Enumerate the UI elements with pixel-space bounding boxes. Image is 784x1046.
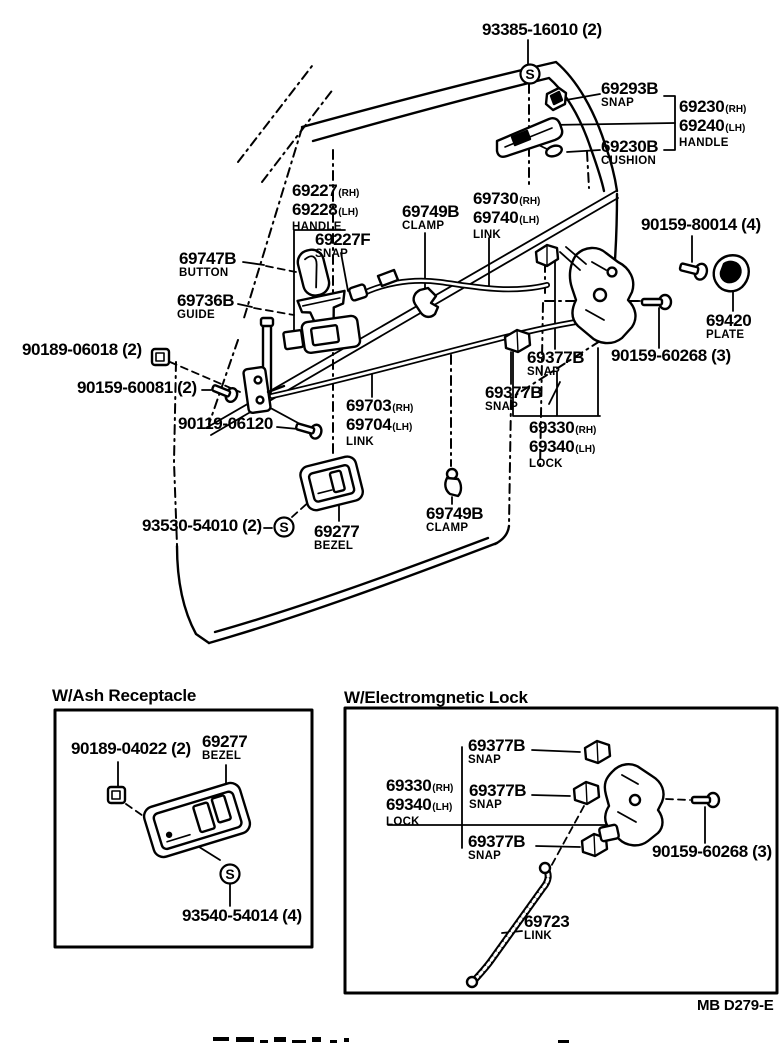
part-number: 69277	[314, 524, 359, 540]
part-number: 90119-06120	[178, 416, 273, 432]
callout-90119-06120: 90119-06120	[178, 416, 273, 432]
callout-69377b-inset-3: 69377B SNAP	[468, 834, 525, 862]
callout-69736b: 69736B GUIDE	[177, 293, 234, 321]
part-suffix: (RH)	[725, 104, 746, 115]
part-suffix: (RH)	[519, 196, 540, 207]
part-suffix: (RH)	[575, 425, 596, 436]
part-number: 93540-54014 (4)	[182, 908, 302, 924]
part-name: SNAP	[469, 800, 526, 811]
screw-90159-80014	[678, 259, 708, 281]
part-number: 69377B	[469, 783, 526, 799]
callout-69749b-top: 69749B CLAMP	[402, 204, 459, 232]
callout-69227-69228-handle: 69227(RH) 69228(LH) HANDLE	[292, 183, 359, 233]
bell-crank	[243, 367, 284, 414]
callout-69723: 69723 LINK	[524, 914, 569, 942]
part-number: 90189-04022 (2)	[71, 741, 191, 757]
part-number: 69730	[473, 189, 518, 208]
part-number: 69704	[346, 415, 391, 434]
part-name: SNAP	[468, 851, 525, 862]
inset-lock-title: W/Electromgnetic Lock	[344, 688, 528, 708]
part-number: 69227F	[315, 232, 370, 248]
part-number: 69377B	[527, 350, 584, 366]
part-number: 93530-54010 (2)	[142, 518, 262, 534]
callout-69377b-inset-1: 69377B SNAP	[468, 738, 525, 766]
screw-90159-60081	[210, 381, 239, 404]
callout-93530-54010: 93530-54010 (2)	[142, 518, 262, 534]
callout-69377b-inset-2: 69377B SNAP	[469, 783, 526, 811]
diagram-line-art: S S S	[0, 0, 784, 1046]
callout-69277-main: 69277 BEZEL	[314, 524, 359, 552]
part-name: CLAMP	[402, 221, 459, 232]
callout-93385-16010: 93385-16010 (2)	[482, 22, 602, 38]
screw-symbol-glyph: S	[525, 66, 534, 82]
callout-69749b-bottom: 69749B CLAMP	[426, 506, 483, 534]
part-name: SNAP	[315, 249, 370, 260]
callout-69293b: 69293B SNAP	[601, 81, 658, 109]
part-number: 69293B	[601, 81, 658, 97]
part-suffix: (LH)	[725, 123, 745, 134]
figure-code: MB D279-E	[697, 997, 774, 1014]
part-number: 69330	[386, 776, 431, 795]
parts-diagram-page: S S S 93385-16010 (2) 69293B SNAP 69230(…	[0, 0, 784, 1046]
part-suffix: (RH)	[338, 188, 359, 199]
callout-69330-69340-lock-inset: 69330(RH) 69340(LH) LOCK	[386, 778, 453, 828]
screw-90159-60268-main	[642, 295, 671, 309]
part-name: CUSHION	[601, 156, 658, 167]
part-number: 69230	[679, 97, 724, 116]
plate-69420	[714, 255, 749, 291]
part-name: SNAP	[485, 402, 542, 413]
part-suffix: (RH)	[432, 783, 453, 794]
part-name: LINK	[346, 437, 413, 448]
callout-69230-69240-handle: 69230(RH) 69240(LH) HANDLE	[679, 99, 746, 149]
bezel-69277-main	[299, 455, 365, 512]
part-number: 69723	[524, 914, 569, 930]
callout-69277-inset: 69277 BEZEL	[202, 734, 247, 762]
part-name: SNAP	[601, 98, 658, 109]
part-number: 69703	[346, 396, 391, 415]
part-number: 90159-60268 (3)	[652, 844, 772, 860]
part-number: 93385-16010 (2)	[482, 22, 602, 38]
part-name: LOCK	[529, 459, 596, 470]
part-name: HANDLE	[679, 138, 746, 149]
snap-69293b	[546, 88, 566, 110]
clamp-69749b-top	[414, 288, 438, 317]
callout-90159-60268-inset: 90159-60268 (3)	[652, 844, 772, 860]
part-suffix: (LH)	[392, 422, 412, 433]
part-number: 69340	[386, 795, 431, 814]
part-name: GUIDE	[177, 310, 234, 321]
part-number: 90159-60268 (3)	[611, 348, 731, 364]
callout-69330-69340-lock: 69330(RH) 69340(LH) LOCK	[529, 420, 596, 470]
cushion-69230b	[545, 144, 563, 158]
part-number: 90159-80014 (4)	[641, 217, 761, 233]
part-number: 69227	[292, 181, 337, 200]
callout-90159-60268: 90159-60268 (3)	[611, 348, 731, 364]
callout-90159-60081: 90159-60081 (2)	[77, 380, 197, 396]
callout-93540-54014: 93540-54014 (4)	[182, 908, 302, 924]
part-number: 69740	[473, 208, 518, 227]
callout-90189-06018: 90189-06018 (2)	[22, 342, 142, 358]
part-suffix: (LH)	[432, 802, 452, 813]
part-number: 69420	[706, 313, 751, 329]
part-name: BUTTON	[179, 268, 236, 279]
lock-assembly-inset	[599, 764, 664, 845]
part-suffix: (LH)	[519, 215, 539, 226]
nut-90189-06018	[152, 349, 169, 365]
part-number: 69340	[529, 437, 574, 456]
part-name: BEZEL	[314, 541, 359, 552]
part-number: 69230B	[601, 139, 658, 155]
part-name: LINK	[473, 230, 540, 241]
screw-90159-60268-inset	[692, 793, 719, 807]
clamp-69749b-bottom	[445, 469, 461, 496]
part-number: 69747B	[179, 251, 236, 267]
callout-90189-04022: 90189-04022 (2)	[71, 741, 191, 757]
part-name: LOCK	[386, 817, 453, 828]
part-number: 90159-60081 (2)	[77, 380, 197, 396]
part-number: 69377B	[485, 385, 542, 401]
part-number: 69277	[202, 734, 247, 750]
part-number: 69228	[292, 200, 337, 219]
part-name: BEZEL	[202, 751, 247, 762]
part-number: 69377B	[468, 834, 525, 850]
part-number: 69749B	[402, 204, 459, 220]
screw-symbol-glyph: S	[279, 519, 288, 535]
part-name: PLATE	[706, 330, 751, 341]
part-number: 69330	[529, 418, 574, 437]
screw-symbol-glyph: S	[225, 866, 234, 882]
inset-ash-title: W/Ash Receptacle	[52, 686, 196, 706]
callout-69747b: 69747B BUTTON	[179, 251, 236, 279]
callout-69420: 69420 PLATE	[706, 313, 751, 341]
part-suffix: (LH)	[338, 207, 358, 218]
part-number: 69240	[679, 116, 724, 135]
part-suffix: (RH)	[392, 403, 413, 414]
callout-90159-80014: 90159-80014 (4)	[641, 217, 761, 233]
part-name: CLAMP	[426, 523, 483, 534]
callout-69227f: 69227F SNAP	[315, 232, 370, 260]
door-lock-assembly	[560, 247, 635, 343]
part-number: 69736B	[177, 293, 234, 309]
part-name: LINK	[524, 931, 569, 942]
callout-69377b-1: 69377B SNAP	[527, 350, 584, 378]
callout-69230b: 69230B CUSHION	[601, 139, 658, 167]
callout-69703-69704-link: 69703(RH) 69704(LH) LINK	[346, 398, 413, 448]
part-number: 90189-06018 (2)	[22, 342, 142, 358]
inset-ash-art	[108, 762, 252, 906]
part-number: 69377B	[468, 738, 525, 754]
callout-69377b-2: 69377B SNAP	[485, 385, 542, 413]
part-number: 69749B	[426, 506, 483, 522]
part-name: SNAP	[527, 367, 584, 378]
part-suffix: (LH)	[575, 444, 595, 455]
part-name: SNAP	[468, 755, 525, 766]
cropped-print-artifact	[213, 1037, 569, 1043]
callout-69730-69740-link: 69730(RH) 69740(LH) LINK	[473, 191, 540, 241]
